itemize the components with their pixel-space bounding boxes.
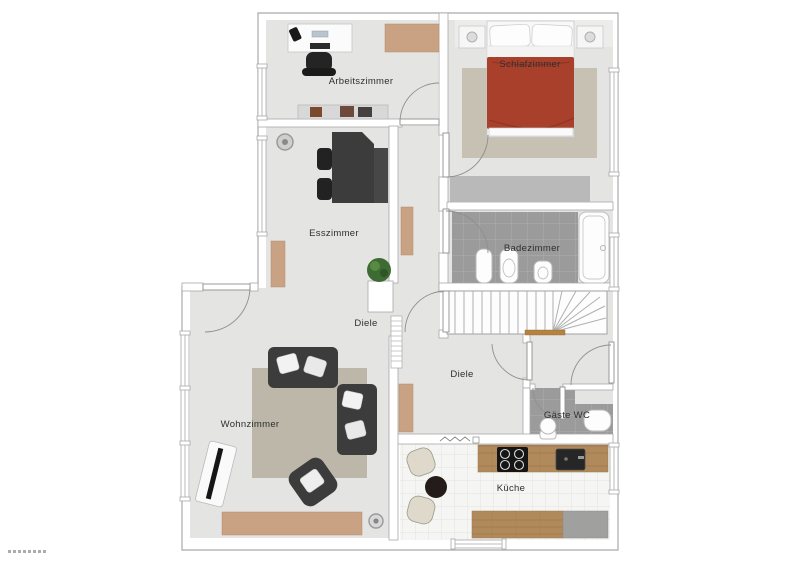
sofa-top [268, 347, 338, 388]
potted-plant [367, 258, 391, 282]
label-badezimmer: Badezimmer [504, 243, 560, 254]
bookshelf [298, 105, 388, 119]
label-arbeitszimmer: Arbeitszimmer [329, 76, 394, 87]
nightstand-left [459, 26, 485, 48]
window [257, 136, 267, 236]
label-diele-lower: Diele [450, 369, 473, 380]
bidet [534, 261, 552, 283]
window [609, 68, 619, 176]
toilet [500, 249, 518, 283]
wardrobe [450, 176, 590, 202]
keyboard [312, 31, 328, 37]
wc-toilet [540, 418, 556, 439]
double-bed [487, 21, 574, 137]
ceiling-lamp [277, 134, 293, 150]
sofa-right [337, 384, 377, 455]
staircase [447, 291, 607, 335]
kitchen-sink [556, 449, 585, 470]
label-schlafzimmer: Schlafzimmer [499, 59, 560, 70]
nightstand-right [577, 26, 603, 48]
window [609, 443, 619, 494]
label-diele-upper: Diele [354, 318, 377, 329]
label-esszimmer: Esszimmer [309, 228, 359, 239]
window [257, 64, 267, 120]
label-wohnzimmer: Wohnzimmer [221, 419, 280, 430]
window [609, 233, 619, 291]
desk [288, 24, 352, 52]
kitchen-table [425, 476, 447, 498]
radiator [399, 384, 413, 432]
stair-handrail [525, 330, 565, 335]
fine-print-illegible [8, 550, 46, 553]
office-chair [302, 52, 336, 76]
bathtub [579, 212, 609, 283]
dining-bench [374, 148, 388, 203]
window [451, 539, 506, 549]
study-dresser [385, 24, 439, 52]
label-gaeste-wc: Gäste WC [544, 410, 590, 421]
dining-chair [317, 148, 332, 170]
monitor [310, 43, 330, 49]
speaker [369, 514, 383, 528]
hob [497, 447, 528, 472]
label-kueche: Küche [497, 483, 525, 494]
dining-chair [317, 178, 332, 200]
sideboard [222, 512, 362, 535]
radiator [401, 207, 413, 255]
kitchen-counter-gray [563, 511, 608, 538]
radiator [271, 241, 285, 287]
bathroom-sink [476, 249, 492, 283]
dining-table [332, 132, 374, 203]
floor-plan-canvas: Arbeitszimmer Schlafzimmer Badezimmer Es… [0, 0, 800, 565]
floor-plan-page: Arbeitszimmer Schlafzimmer Badezimmer Es… [0, 0, 800, 565]
window [180, 331, 190, 501]
hall-shelf [391, 316, 402, 368]
kitchen-counter-bottom [472, 511, 563, 538]
pass-through-post [473, 437, 479, 443]
